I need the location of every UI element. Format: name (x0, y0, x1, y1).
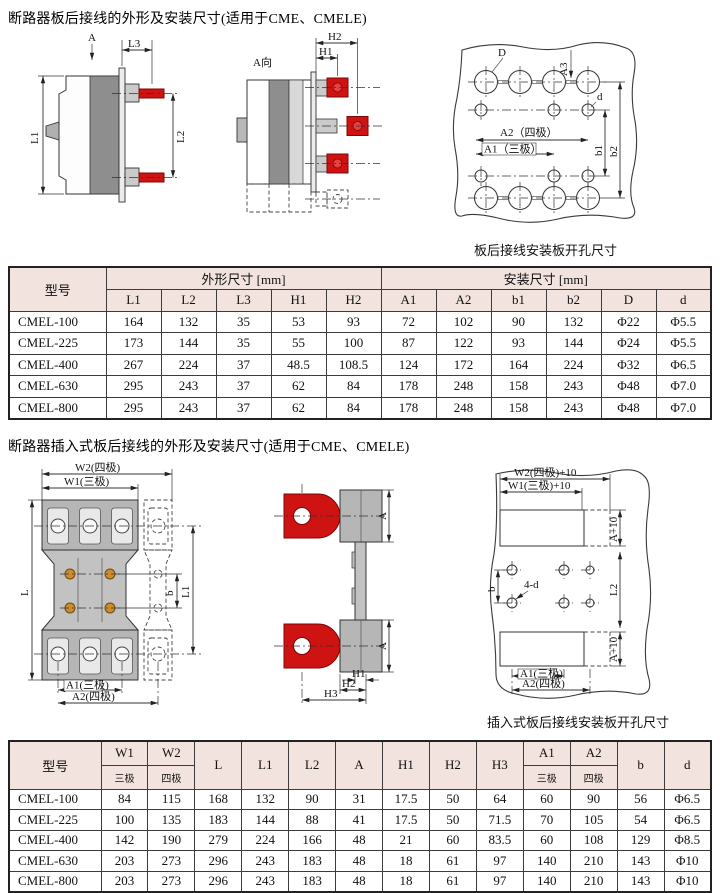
model-cell: CMEL-100 (9, 789, 101, 810)
table-row: CMEL-10084115168132903117.55064609056Φ6.… (9, 789, 711, 810)
subheader-three-pole: 三极 (523, 765, 570, 789)
value-cell: 132 (546, 311, 601, 333)
value-cell: 60 (523, 830, 570, 851)
plugin-dimension-table: 型号 W1 W2 L L1 L2 A H1 H2 H3 A1 A2 b d 三极… (8, 740, 712, 893)
value-cell: 140 (523, 871, 570, 892)
col-header: L2 (161, 289, 216, 311)
dim-label-l: L (19, 589, 31, 596)
value-cell: 183 (289, 871, 336, 892)
value-cell: 144 (546, 333, 601, 355)
value-cell: Φ5.5 (656, 333, 711, 355)
breaker-handle (237, 118, 247, 142)
value-cell: 60 (523, 789, 570, 810)
value-cell: 143 (617, 871, 664, 892)
value-cell: Φ8.5 (664, 830, 711, 851)
value-cell: 243 (161, 397, 216, 419)
value-cell: 142 (101, 830, 148, 851)
value-cell: 100 (326, 333, 381, 355)
value-cell: 210 (570, 851, 617, 872)
fourth-pole-phantom (144, 500, 172, 680)
value-cell: 18 (383, 851, 430, 872)
connecting-bar (355, 542, 366, 620)
drawing-plugin-plate-holes: W2(四极)+10 W1(三极)+10 A+10 b 4-d (486, 464, 654, 706)
dim-label-a-bottom: A (377, 642, 389, 650)
cutout-top (500, 510, 584, 546)
model-cell: CMEL-800 (9, 871, 101, 892)
dim-label-a2: A2(四极) (72, 689, 115, 703)
value-cell: 168 (195, 789, 242, 810)
col-header: b2 (546, 289, 601, 311)
value-cell: 140 (523, 851, 570, 872)
value-cell: 48 (336, 830, 383, 851)
col-header: H2 (429, 741, 476, 789)
value-cell: Φ32 (601, 354, 656, 376)
model-cell: CMEL-225 (9, 810, 101, 831)
mounting-plate (119, 68, 125, 202)
dim-label-4d: 4-d (524, 579, 539, 591)
value-cell: Φ48 (601, 397, 656, 419)
value-cell: 108.5 (326, 354, 381, 376)
section2-title: 断路器插入式板后接线的外形及安装尺寸(适用于CME、CMELE) (8, 436, 410, 456)
col-header: H1 (271, 289, 326, 311)
drawing-breaker-side-view: A L3 L1 L2 (26, 30, 191, 235)
value-cell: 105 (570, 810, 617, 831)
value-cell: 100 (101, 810, 148, 831)
dim-label-b2: b2 (608, 146, 620, 157)
value-cell: 54 (617, 810, 664, 831)
value-cell: 243 (242, 851, 289, 872)
table-row: CMEL-40014219027922416648216083.56010812… (9, 830, 711, 851)
col-header: L3 (216, 289, 271, 311)
col-header: L1 (242, 741, 289, 789)
value-cell: 183 (289, 851, 336, 872)
value-cell: Φ6.5 (656, 354, 711, 376)
dim-label-w2: W2(四极) (75, 460, 121, 474)
dim-label-a2: A2（四极） (500, 125, 557, 139)
drawing-plugin-side-view: A A H1 H2 H3 (268, 462, 398, 706)
model-cell: CMEL-400 (9, 830, 101, 851)
value-cell: 35 (216, 311, 271, 333)
value-cell: 18 (383, 871, 430, 892)
col-header: b1 (491, 289, 546, 311)
dim-label-l3: L3 (128, 38, 141, 50)
value-cell: 132 (161, 311, 216, 333)
fourth-pole-phantom (247, 184, 311, 212)
value-cell: 61 (429, 851, 476, 872)
value-cell: 224 (242, 830, 289, 851)
dim-label-h1: H1 (319, 46, 332, 58)
value-cell: 203 (101, 871, 148, 892)
value-cell: 70 (523, 810, 570, 831)
dim-label-l2: L2 (175, 131, 187, 143)
value-cell: 90 (491, 311, 546, 333)
plugin-base-middle (42, 550, 138, 630)
dim-label-h2: H2 (328, 31, 341, 43)
model-cell: CMEL-225 (9, 333, 106, 355)
value-cell: 248 (436, 376, 491, 398)
value-cell: 210 (570, 871, 617, 892)
value-cell: 122 (436, 333, 491, 355)
value-cell: 41 (336, 810, 383, 831)
value-cell: 164 (491, 354, 546, 376)
col-header: H1 (383, 741, 430, 789)
value-cell: 273 (148, 851, 195, 872)
value-cell: Φ48 (601, 376, 656, 398)
dim-label-b: b (164, 590, 176, 596)
group-header-outline: 外形尺寸 [mm] (106, 267, 381, 289)
value-cell: 129 (617, 830, 664, 851)
cutout-bottom (500, 632, 584, 666)
table-row: CMEL-225100135183144884117.55071.5701055… (9, 810, 711, 831)
outline-install-table: 型号 外形尺寸 [mm] 安装尺寸 [mm] L1 L2 L3 H1 H2 A1… (8, 266, 712, 420)
model-cell: CMEL-800 (9, 397, 106, 419)
mounting-plate (311, 72, 316, 192)
value-cell: 115 (148, 789, 195, 810)
value-cell: 31 (336, 789, 383, 810)
value-cell: 53 (271, 311, 326, 333)
value-cell: 64 (476, 789, 523, 810)
table-row: CMEL-80020327329624318348186197140210143… (9, 871, 711, 892)
dim-label-a10-top: A+10 (608, 516, 620, 542)
table-row: CMEL-800295243376284178248158243Φ48Φ7.0 (9, 397, 711, 419)
value-cell: 84 (326, 376, 381, 398)
value-cell: 60 (429, 830, 476, 851)
value-cell: 173 (106, 333, 161, 355)
col-header: D (601, 289, 656, 311)
value-cell: 83.5 (476, 830, 523, 851)
col-header-d: d (664, 741, 711, 789)
value-cell: 224 (546, 354, 601, 376)
model-cell: CMEL-630 (9, 376, 106, 398)
value-cell: 178 (381, 397, 436, 419)
dim-label-a: A (88, 32, 96, 44)
value-cell: Φ6.5 (664, 789, 711, 810)
value-cell: 243 (161, 376, 216, 398)
value-cell: 183 (195, 810, 242, 831)
value-cell: 295 (106, 397, 161, 419)
value-cell: 267 (106, 354, 161, 376)
col-header: d (656, 289, 711, 311)
value-cell: 243 (242, 871, 289, 892)
value-cell: 132 (242, 789, 289, 810)
drawing-plugin-front-view: W2(四极) W1(三极) (20, 462, 215, 710)
dim-label-w2p10: W2(四极)+10 (514, 465, 577, 479)
subheader-four-pole: 四极 (148, 765, 195, 789)
dim-label-a10-bottom: A+10 (608, 636, 620, 662)
col-header-a2: A2 (570, 741, 617, 765)
value-cell: Φ7.0 (656, 376, 711, 398)
table-row: CMEL-63020327329624318348186197140210143… (9, 851, 711, 872)
drawing-breaker-a-view: H2 H1 A向 (235, 30, 390, 235)
value-cell: Φ5.5 (656, 311, 711, 333)
dim-label-a1: A1（三极） (484, 142, 541, 156)
model-cell: CMEL-100 (9, 311, 106, 333)
value-cell: 124 (381, 354, 436, 376)
col-header-w1: W1 (101, 741, 148, 765)
value-cell: 279 (195, 830, 242, 851)
col-header-a1: A1 (523, 741, 570, 765)
dim-label-h3: H3 (324, 688, 338, 700)
value-cell: 203 (101, 851, 148, 872)
section1-title: 断路器板后接线的外形及安装尺寸(适用于CME、CMELE) (8, 8, 367, 28)
value-cell: 135 (148, 810, 195, 831)
breaker-handle (46, 122, 59, 140)
col-header: A2 (436, 289, 491, 311)
table-row: CMEL-1001641323553937210290132Φ22Φ5.5 (9, 311, 711, 333)
col-header-model: 型号 (9, 267, 106, 311)
col-header-b: b (617, 741, 664, 789)
value-cell: 35 (216, 333, 271, 355)
value-cell: 296 (195, 851, 242, 872)
value-cell: 248 (436, 397, 491, 419)
value-cell: 56 (617, 789, 664, 810)
dim-label-d: d (597, 91, 603, 103)
value-cell: 90 (289, 789, 336, 810)
value-cell: 72 (381, 311, 436, 333)
value-cell: 37 (216, 354, 271, 376)
value-cell: Φ10 (664, 851, 711, 872)
col-header: H2 (326, 289, 381, 311)
value-cell: 224 (161, 354, 216, 376)
value-cell: 172 (436, 354, 491, 376)
value-cell: 21 (383, 830, 430, 851)
value-cell: Φ10 (664, 871, 711, 892)
value-cell: 88 (289, 810, 336, 831)
view-label: A向 (253, 55, 272, 69)
model-cell: CMEL-630 (9, 851, 101, 872)
dim-label-a-top: A (377, 512, 389, 520)
value-cell: 158 (491, 376, 546, 398)
value-cell: 102 (436, 311, 491, 333)
table-header-row: 型号 W1 W2 L L1 L2 A H1 H2 H3 A1 A2 b d (9, 741, 711, 765)
col-header-model: 型号 (9, 741, 101, 789)
value-cell: 61 (429, 871, 476, 892)
value-cell: 190 (148, 830, 195, 851)
datasheet-page: 断路器板后接线的外形及安装尺寸(适用于CME、CMELE) A L3 L1 L2 (0, 0, 720, 893)
value-cell: 90 (570, 789, 617, 810)
subheader-three-pole: 三极 (101, 765, 148, 789)
plate-caption-2: 插入式板后接线安装板开孔尺寸 (458, 712, 698, 731)
value-cell: 144 (242, 810, 289, 831)
value-cell: 97 (476, 851, 523, 872)
dim-label-a1: A1(三极) (66, 678, 109, 692)
col-header: A1 (381, 289, 436, 311)
value-cell: 48 (336, 851, 383, 872)
value-cell: 48 (336, 871, 383, 892)
dim-label-b: b (486, 586, 498, 592)
value-cell: 164 (106, 311, 161, 333)
table-row: CMEL-630295243376284178248158243Φ48Φ7.0 (9, 376, 711, 398)
plate-caption-1: 板后接线安装板开孔尺寸 (448, 240, 643, 259)
value-cell: 37 (216, 376, 271, 398)
value-cell: 108 (570, 830, 617, 851)
value-cell: 178 (381, 376, 436, 398)
dim-label-D: D (498, 47, 506, 59)
value-cell: 17.5 (383, 789, 430, 810)
col-header: A (336, 741, 383, 789)
col-header: L1 (106, 289, 161, 311)
value-cell: 37 (216, 397, 271, 419)
dim-label-a3: A3 (558, 62, 570, 76)
value-cell: Φ7.0 (656, 397, 711, 419)
value-cell: Φ24 (601, 333, 656, 355)
value-cell: 166 (289, 830, 336, 851)
dim-label-l1: L1 (180, 586, 192, 598)
value-cell: 50 (429, 810, 476, 831)
value-cell: 295 (106, 376, 161, 398)
value-cell: 93 (326, 311, 381, 333)
col-header: H3 (476, 741, 523, 789)
model-cell: CMEL-400 (9, 354, 106, 376)
value-cell: 296 (195, 871, 242, 892)
table-row: CMEL-4002672243748.5108.5124172164224Φ32… (9, 354, 711, 376)
subheader-four-pole: 四极 (570, 765, 617, 789)
value-cell: 273 (148, 871, 195, 892)
dim-label-l1: L1 (29, 132, 41, 144)
value-cell: 144 (161, 333, 216, 355)
value-cell: 55 (271, 333, 326, 355)
value-cell: 62 (271, 376, 326, 398)
table-row: CMEL-22517314435551008712293144Φ24Φ5.5 (9, 333, 711, 355)
value-cell: 48.5 (271, 354, 326, 376)
dim-label-w1: W1(三极) (64, 474, 110, 488)
dim-label-h2: H2 (342, 678, 355, 690)
value-cell: 17.5 (383, 810, 430, 831)
value-cell: 84 (326, 397, 381, 419)
col-header: L (195, 741, 242, 789)
value-cell: 87 (381, 333, 436, 355)
value-cell: 50 (429, 789, 476, 810)
value-cell: Φ22 (601, 311, 656, 333)
value-cell: 62 (271, 397, 326, 419)
table-subheader-row: L1 L2 L3 H1 H2 A1 A2 b1 b2 D d (9, 289, 711, 311)
value-cell: 243 (546, 376, 601, 398)
col-header: L2 (289, 741, 336, 789)
value-cell: 243 (546, 397, 601, 419)
table-header-row: 型号 外形尺寸 [mm] 安装尺寸 [mm] (9, 267, 711, 289)
dim-label-l2: L2 (608, 584, 620, 596)
dim-label-b1: b1 (593, 145, 605, 156)
drawing-plate-holes: D A3 d A2（四极） A1（三极） b1 b2 (448, 36, 643, 232)
col-header-w2: W2 (148, 741, 195, 765)
value-cell: 93 (491, 333, 546, 355)
value-cell: 158 (491, 397, 546, 419)
value-cell: 71.5 (476, 810, 523, 831)
value-cell: Φ6.5 (664, 810, 711, 831)
value-cell: 84 (101, 789, 148, 810)
value-cell: 143 (617, 851, 664, 872)
value-cell: 97 (476, 871, 523, 892)
dim-label-w1p10: W1(三极)+10 (508, 478, 571, 492)
group-header-install: 安装尺寸 [mm] (381, 267, 711, 289)
dim-label-a2: A2(四极) (522, 676, 565, 690)
